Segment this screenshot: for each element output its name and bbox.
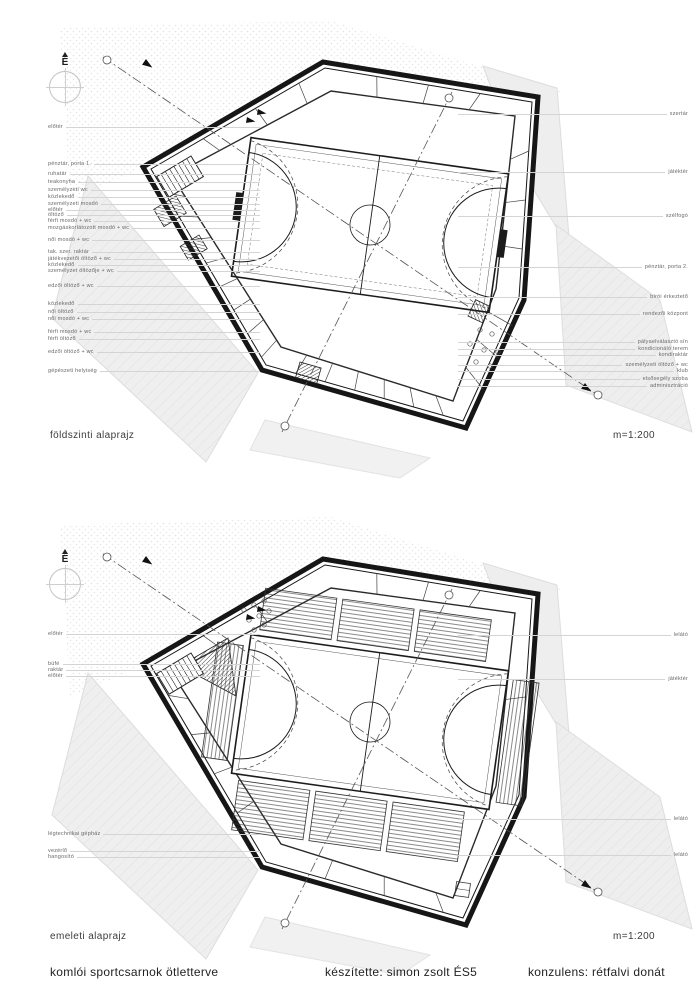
room-label: lelátó xyxy=(455,817,688,823)
room-label: lelátó xyxy=(455,633,688,639)
room-label: előtér xyxy=(48,674,263,680)
room-label: vezérlő xyxy=(48,849,263,855)
room-label: raktár xyxy=(48,668,263,674)
compass-icon xyxy=(49,568,81,600)
project-title: komlói sportcsarnok ötletterve xyxy=(50,965,218,979)
plan-scale: m=1:200 xyxy=(613,931,655,942)
room-label: hangosító xyxy=(48,855,263,861)
room-label: légtechnikai gépház xyxy=(48,832,263,838)
north-label: É xyxy=(48,57,82,68)
plan-title: emeleti alaprajz xyxy=(50,931,126,942)
room-label: előtér xyxy=(48,632,263,638)
upper-floor-right-labels: lelátójátéktérlelátólelátó xyxy=(455,0,688,1000)
author-credit: készítette: simon zsolt ÉS5 xyxy=(325,965,477,979)
room-label: játéktér xyxy=(455,677,688,683)
north-label: É xyxy=(48,554,82,565)
architectural-sheet: É É előtérpénztár, porta 1.ruhatárteakon… xyxy=(0,0,700,1000)
room-label: büfé xyxy=(48,662,263,668)
consultant-credit: konzulens: rétfalvi donát xyxy=(528,965,665,979)
north-indicator: É xyxy=(48,549,82,600)
room-label: lelátó xyxy=(455,853,688,859)
north-indicator: É xyxy=(48,52,82,103)
plan-scale: m=1:200 xyxy=(613,430,655,441)
plan-title: földszinti alaprajz xyxy=(50,430,134,441)
compass-icon xyxy=(49,71,81,103)
upper-floor-left-labels: előtérbüféraktárelőtérlégtechnikai géphá… xyxy=(48,0,263,1000)
